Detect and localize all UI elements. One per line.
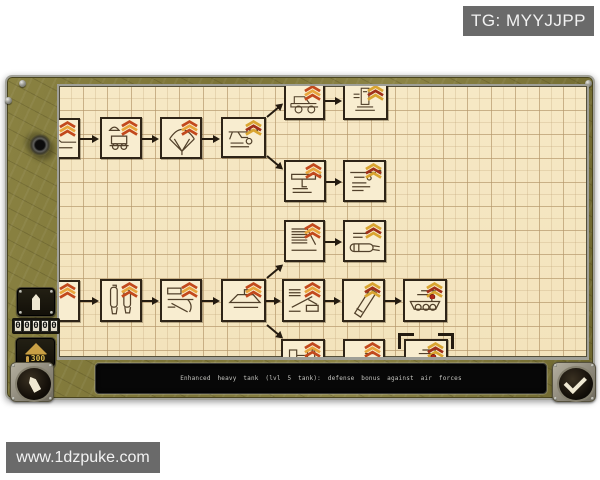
tech-node-f1[interactable]: [281, 339, 325, 360]
tech-tree-grid: [57, 84, 589, 360]
tech-arrow: [266, 268, 279, 279]
page: { "watermarks": { "top_right": "TG: MYYJ…: [0, 0, 600, 480]
game-window: 00000 300 Enhanced heavy tank (lvl 5 tan…: [5, 75, 595, 400]
tech-arrow: [326, 181, 336, 183]
tech-node-b2a[interactable]: [284, 160, 326, 202]
tech-node-e3[interactable]: [403, 279, 447, 322]
rivet-icon: [5, 97, 12, 104]
tech-arrow: [80, 300, 93, 302]
confirm-button[interactable]: [552, 362, 596, 402]
counter-digit: 0: [41, 320, 49, 332]
screw-icon: [554, 397, 557, 400]
screw-icon: [50, 290, 53, 293]
screw-icon: [591, 397, 594, 400]
rank-chevron-icon: [364, 163, 383, 180]
rivet-icon: [19, 80, 26, 87]
tech-node-c1[interactable]: [284, 220, 325, 262]
watermark-bottom-left: www.1dzpuke.com: [6, 442, 160, 473]
screw-icon: [19, 311, 22, 314]
tech-arrow: [325, 100, 336, 102]
tech-arrow: [202, 138, 214, 140]
supply-pile-icon: [25, 343, 47, 354]
screw-icon: [12, 397, 15, 400]
tech-arrow: [80, 138, 93, 140]
rank-chevron-icon: [58, 121, 77, 138]
rank-chevron-icon: [425, 282, 444, 299]
rank-chevron-icon: [304, 163, 323, 180]
tech-node-b1b[interactable]: [343, 84, 388, 120]
back-button[interactable]: [10, 362, 54, 402]
status-bar: Enhanced heavy tank (lvl 5 tank): defens…: [95, 363, 547, 394]
rank-chevron-icon: [303, 85, 322, 102]
counter-digit: 0: [23, 320, 31, 332]
tech-node-a4[interactable]: [221, 117, 266, 158]
tech-node-b1a[interactable]: [284, 84, 325, 120]
counter-digit: 0: [50, 320, 58, 332]
tech-arrow: [266, 300, 275, 302]
screw-icon: [12, 364, 15, 367]
tech-node-b2b[interactable]: [343, 160, 386, 202]
status-text: Enhanced heavy tank (lvl 5 tank): defens…: [180, 375, 462, 382]
rank-chevron-icon: [364, 223, 383, 240]
tech-node-a1[interactable]: [57, 118, 80, 159]
bullet-hole-decoration: [29, 134, 51, 156]
tech-node-f2[interactable]: [343, 339, 385, 360]
screw-icon: [19, 290, 22, 293]
tech-arrow: [385, 300, 396, 302]
tech-node-a2[interactable]: [100, 117, 142, 159]
checkmark-icon: [564, 370, 587, 393]
rank-chevron-icon: [58, 283, 77, 300]
unit-type-button[interactable]: [16, 287, 56, 317]
rank-chevron-icon: [180, 282, 199, 299]
screw-icon: [591, 364, 594, 367]
tech-arrow: [325, 241, 336, 243]
shell-back-icon: [26, 375, 42, 394]
tech-node-a3[interactable]: [160, 117, 202, 159]
tech-node-d2[interactable]: [100, 279, 142, 322]
tech-arrow: [142, 138, 153, 140]
tech-arrow: [202, 300, 214, 302]
rank-chevron-icon: [180, 120, 199, 137]
tech-arrow: [266, 107, 279, 118]
rank-chevron-icon: [244, 120, 263, 137]
counter-digit: 0: [14, 320, 22, 332]
research-points-counter: 00000: [12, 318, 60, 334]
tech-node-c2[interactable]: [343, 220, 386, 262]
tech-node-d1[interactable]: [57, 280, 80, 322]
tech-node-e1[interactable]: [282, 279, 325, 322]
screw-icon: [49, 364, 52, 367]
rank-chevron-icon: [303, 342, 322, 359]
watermark-bottom-text: www.1dzpuke.com: [16, 449, 149, 467]
rank-chevron-icon: [366, 85, 385, 102]
rank-chevron-icon: [363, 342, 382, 359]
tech-arrow: [266, 324, 279, 335]
rank-chevron-icon: [120, 282, 139, 299]
watermark-top-right: TG: MYYJJPP: [463, 6, 594, 36]
tech-node-e2[interactable]: [342, 279, 385, 322]
screw-icon: [50, 311, 53, 314]
rank-chevron-icon: [363, 282, 382, 299]
mini-shell-icon: [26, 356, 29, 362]
rank-chevron-icon: [120, 120, 139, 137]
tech-arrow: [266, 155, 279, 166]
tech-arrow: [142, 300, 153, 302]
screw-icon: [554, 364, 557, 367]
counter-digit: 0: [32, 320, 40, 332]
watermark-top-text: TG: MYYJJPP: [471, 11, 586, 31]
rank-chevron-icon: [426, 342, 445, 359]
tech-node-f3[interactable]: [404, 339, 448, 360]
tech-node-d3[interactable]: [160, 279, 202, 322]
shell-icon: [31, 294, 41, 310]
rank-chevron-icon: [303, 223, 322, 240]
rank-chevron-icon: [303, 282, 322, 299]
rank-chevron-icon: [244, 282, 263, 299]
screw-icon: [49, 397, 52, 400]
tech-node-d4[interactable]: [221, 279, 266, 322]
tech-arrow: [325, 300, 335, 302]
